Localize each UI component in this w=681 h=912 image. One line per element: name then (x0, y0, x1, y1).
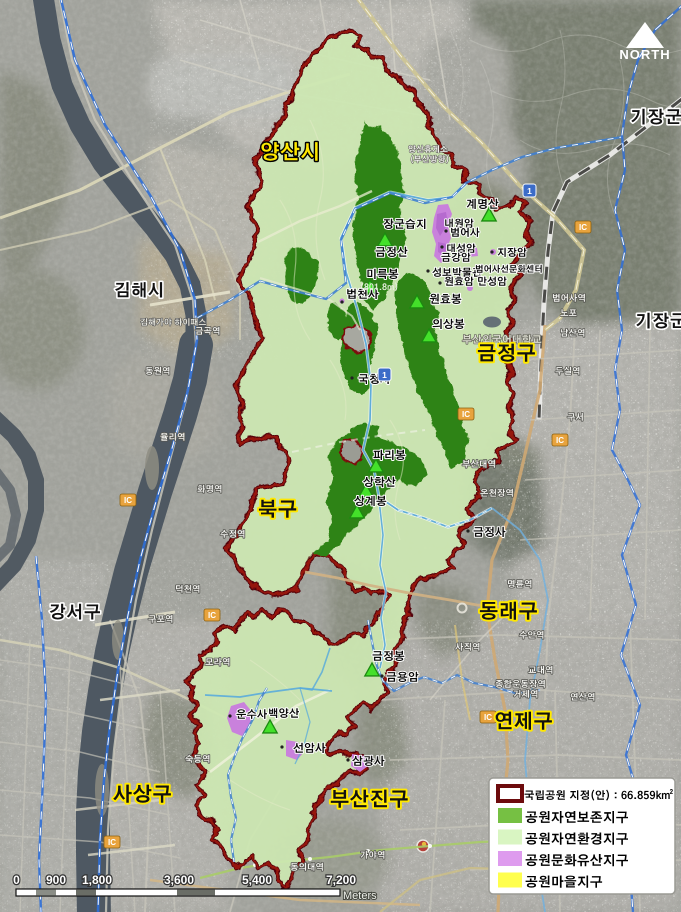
svg-text:IC: IC (484, 713, 492, 722)
svg-text:900: 900 (46, 873, 66, 887)
svg-text:IC: IC (124, 496, 132, 505)
svg-text:IC: IC (462, 410, 470, 419)
svg-text:IC: IC (208, 611, 216, 620)
svg-text:IC: IC (579, 223, 587, 232)
svg-text:IC: IC (556, 436, 564, 445)
svg-text:7,200: 7,200 (326, 873, 356, 887)
svg-text:NORTH: NORTH (619, 47, 670, 62)
svg-text:Meters: Meters (343, 890, 377, 902)
svg-text:3,600: 3,600 (164, 873, 194, 887)
svg-text:1,800: 1,800 (82, 873, 112, 887)
svg-text:1: 1 (527, 186, 532, 196)
svg-text:5,400: 5,400 (242, 873, 272, 887)
svg-text:0: 0 (13, 873, 20, 887)
svg-text:1: 1 (382, 370, 387, 380)
svg-text:IC: IC (108, 838, 116, 847)
